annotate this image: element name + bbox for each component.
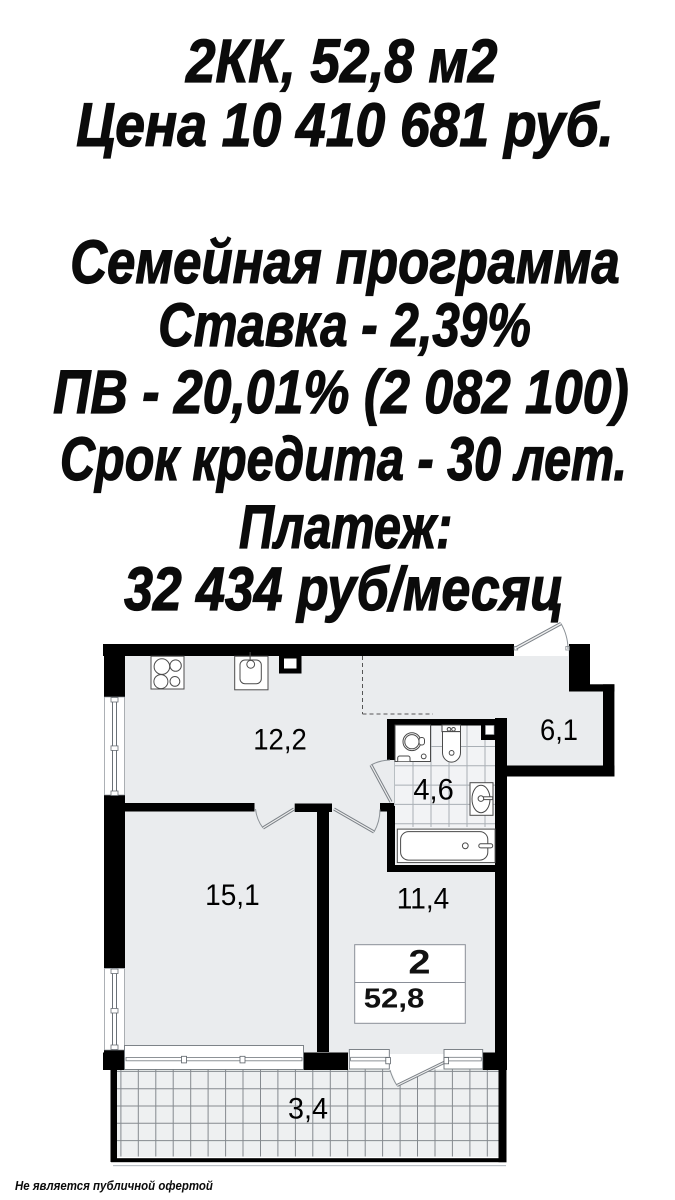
svg-text:6,1: 6,1 <box>540 714 578 747</box>
svg-text:52,8: 52,8 <box>364 982 425 1013</box>
svg-text:15,1: 15,1 <box>205 879 260 912</box>
svg-text:2: 2 <box>408 943 430 981</box>
svg-text:4,6: 4,6 <box>413 774 454 807</box>
svg-text:12,2: 12,2 <box>253 724 307 757</box>
svg-text:11,4: 11,4 <box>397 883 450 916</box>
svg-text:3,4: 3,4 <box>288 1092 328 1125</box>
